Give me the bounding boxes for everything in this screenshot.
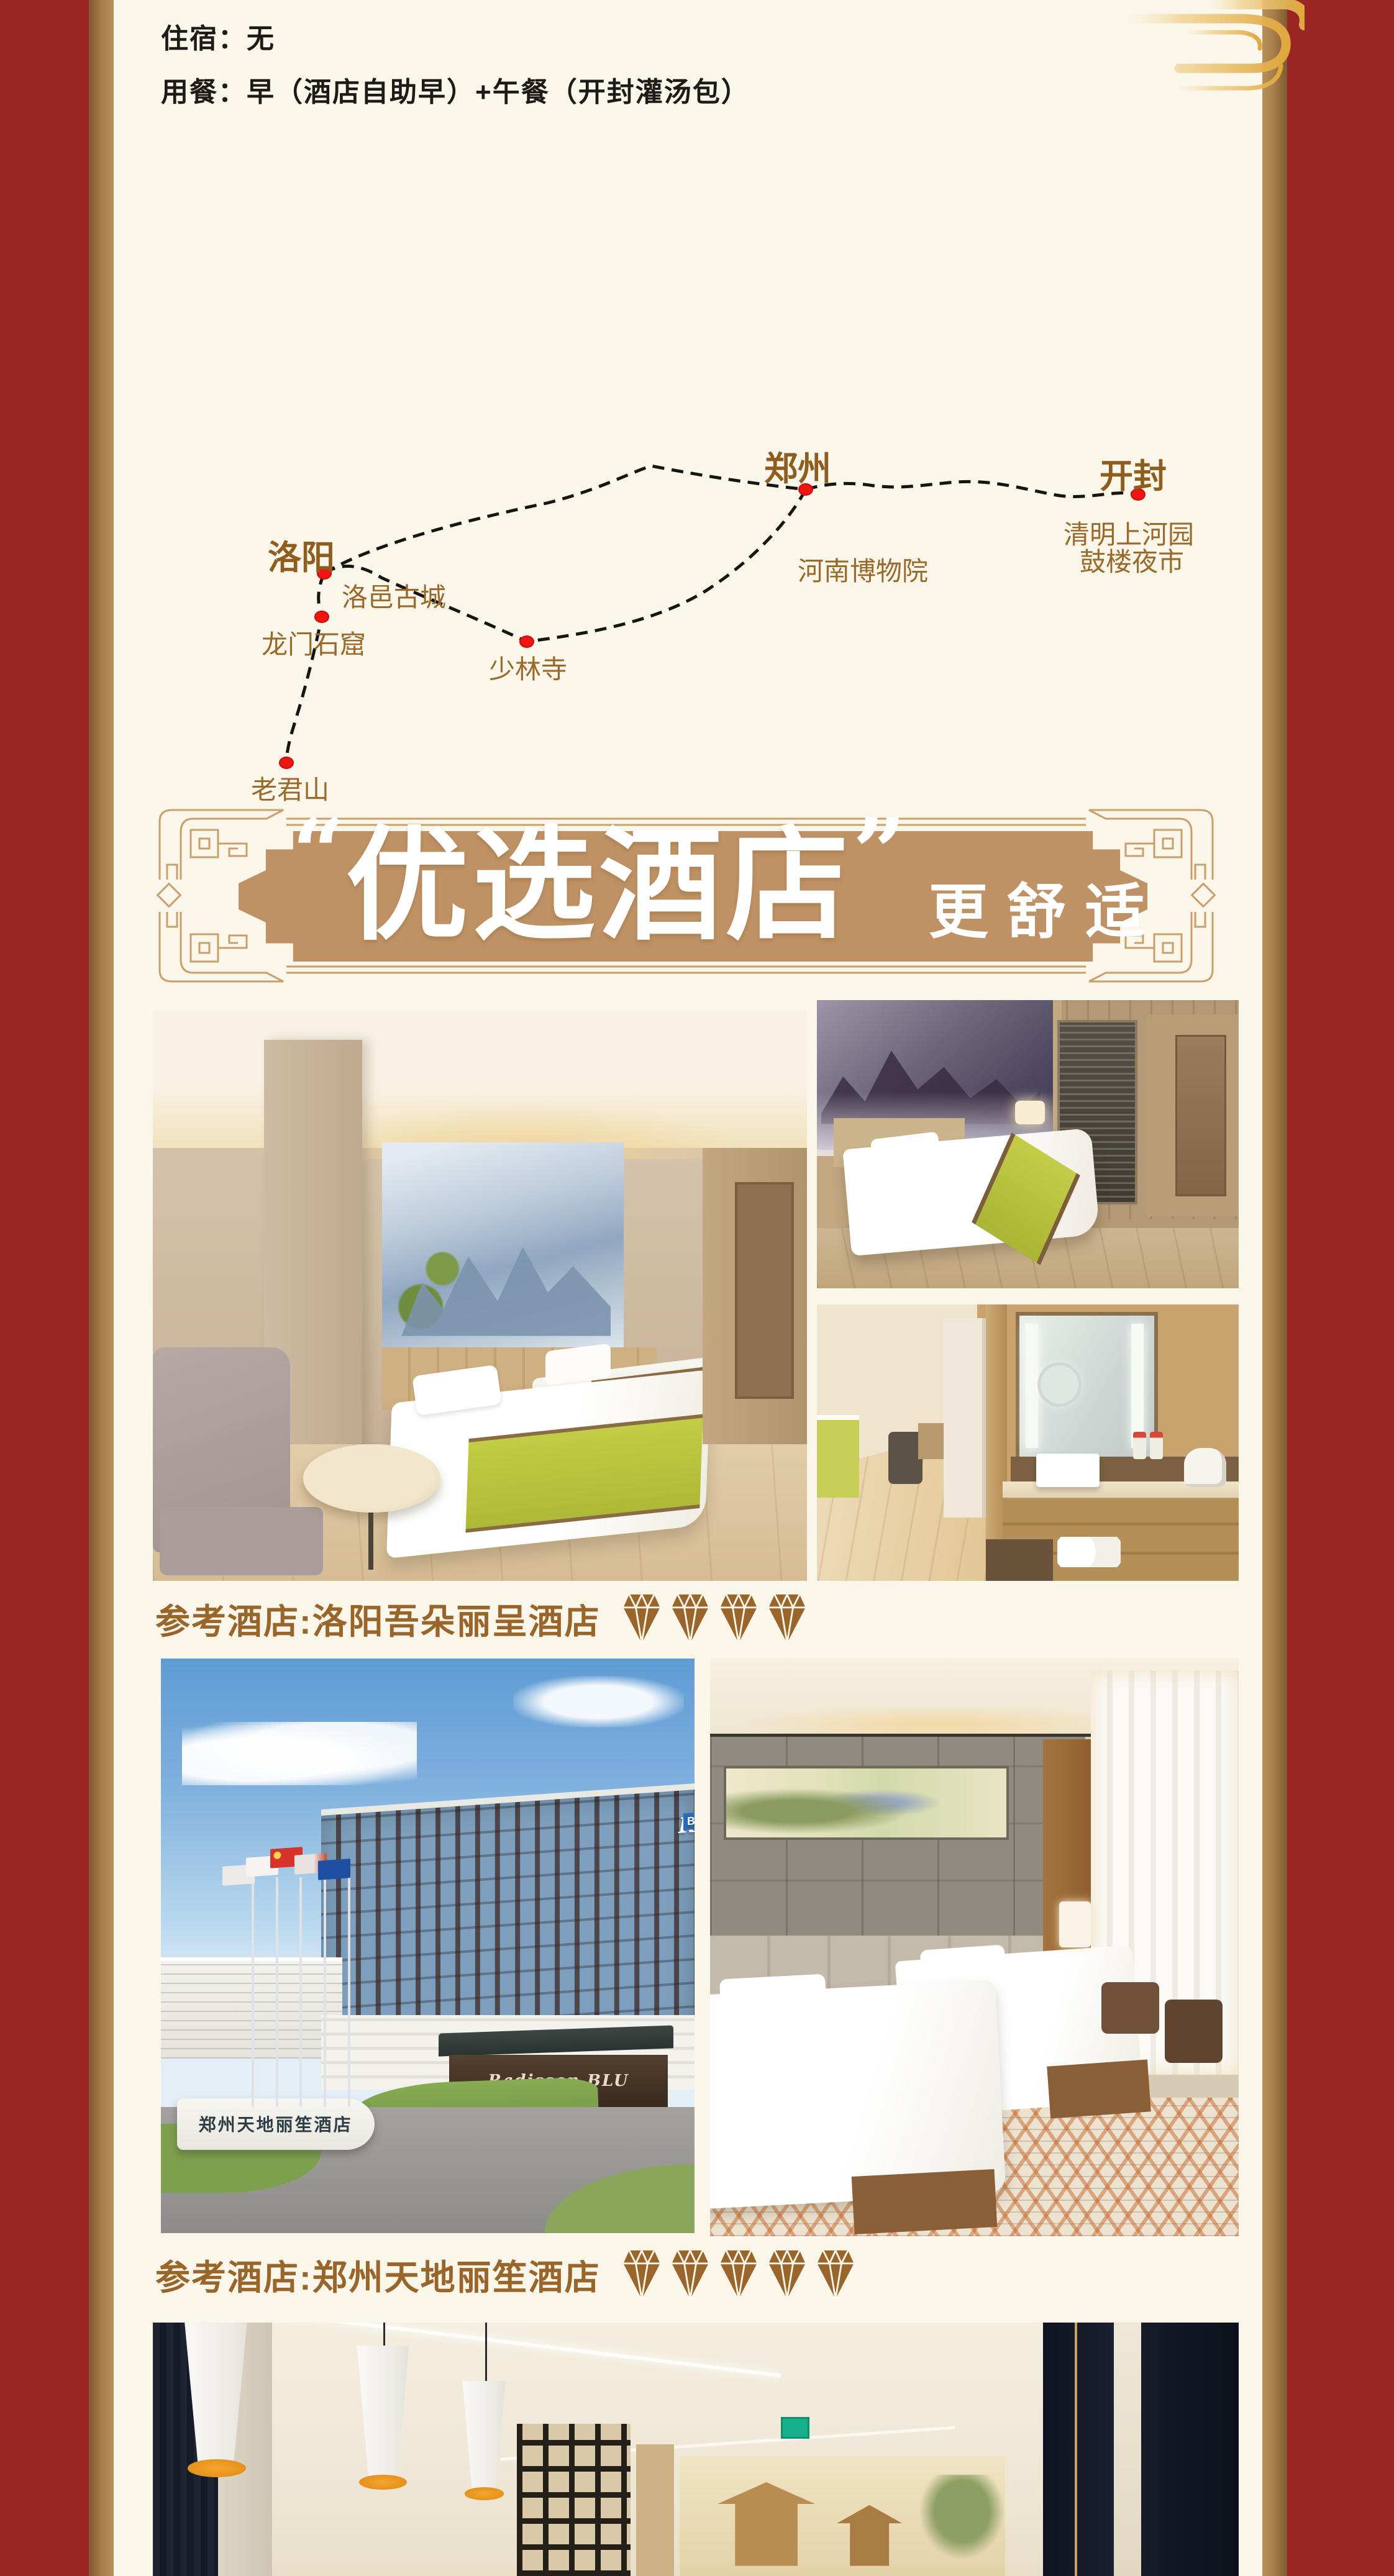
hotel1-caption: 参考酒店:洛阳吾朵丽呈酒店 [155, 1594, 601, 1644]
front-pillow [719, 1973, 827, 2031]
kettle [1184, 1448, 1226, 1486]
map-label-zhengzhou: 郑州 [764, 441, 831, 490]
rolled-towels [1057, 1537, 1121, 1567]
table-leg [368, 1507, 373, 1570]
hotel1-diamond-rating [622, 1593, 816, 1645]
map-label-luoyang: 洛阳 [268, 530, 335, 579]
left-gold-edge [89, 0, 114, 2576]
section-title: 优选酒店 [345, 824, 852, 947]
left-diamond-ornament [158, 884, 181, 907]
map-label-luoyi-ancient-city: 洛邑古城 [342, 576, 446, 614]
flag-blue [318, 1859, 350, 1880]
cloud [513, 1676, 684, 1727]
map-label-kaifeng: 开封 [1100, 448, 1167, 498]
corner-motif-bottom-left [160, 912, 283, 981]
flag-pole [299, 1877, 302, 2107]
diamond-icon [622, 2249, 662, 2301]
flag-pole [276, 1877, 278, 2107]
section-title-banner: “ 优选酒店 ” 更舒适 [292, 808, 1174, 963]
route-luoyang-laojunshan [286, 573, 324, 763]
lamp-wire [485, 2323, 487, 2388]
mural-foliage [913, 2475, 1011, 2566]
close-quote: ” [852, 806, 906, 899]
cloud [182, 1722, 417, 1785]
sofa-seat [160, 1507, 323, 1575]
diamond-icon [719, 1593, 758, 1645]
hotel2-photo-exterior: RadissonBLU Radisson BLU 郑州天地丽笙酒店 [161, 1659, 695, 2233]
gold-slit-light [1075, 2323, 1077, 2576]
mirror-light-strip [1026, 1324, 1038, 1448]
hotel1-photo-bathroom [817, 1304, 1239, 1581]
dark-column [1141, 2323, 1239, 2576]
display-shelf [517, 2424, 631, 2576]
wash-basin [1036, 1454, 1100, 1486]
right-gold-edge [1262, 0, 1287, 2576]
diamond-icon [767, 2249, 807, 2301]
lamp-orange-rim [188, 2459, 246, 2477]
desk-chair [888, 1432, 922, 1485]
hotel3-photo-restaurant [153, 2323, 1239, 2576]
route-map-graphic [0, 404, 1394, 814]
mirror-light-strip [1131, 1324, 1144, 1448]
amenity-bottle [1133, 1432, 1146, 1460]
flag-pole [252, 1877, 254, 2107]
dot-shaolin [520, 636, 534, 647]
round-table [303, 1444, 440, 1513]
section-subtitle: 更舒适 [929, 863, 1164, 950]
map-label-henan-museum: 河南博物院 [798, 550, 928, 588]
lodging-line: 住宿：无 [161, 16, 275, 56]
map-label-longmen-grottoes: 龙门石窟 [262, 624, 366, 662]
flag-pole [348, 1877, 350, 2107]
room-door [735, 1182, 794, 1398]
entry-door [1175, 1035, 1226, 1196]
wall-lamp [1015, 1101, 1045, 1124]
travel-poster-page: 住宿：无 用餐：早（酒店自助早）+午餐（开封灌汤包） 洛阳 郑州 开封 洛邑古城… [0, 0, 1394, 2576]
hotel2-diamond-rating [622, 2249, 864, 2301]
route-luoyang-zhengzhou [324, 466, 806, 573]
front-bed-skirt [851, 2169, 996, 2234]
diamond-icon [767, 1593, 807, 1645]
meals-line: 用餐：早（酒店自助早）+午餐（开封灌汤包） [161, 70, 750, 109]
dot-longmen [315, 611, 329, 622]
diamond-icon [670, 2249, 710, 2301]
monument-sign-text: 郑州天地丽笙酒店 [199, 2111, 353, 2136]
lamp-orange-rim [359, 2475, 407, 2490]
flag-pole [324, 1877, 326, 2107]
diamond-icon [622, 1593, 662, 1645]
diamond-icon [719, 2249, 758, 2301]
armchair [1165, 2000, 1223, 2063]
amenity-bottle [1150, 1432, 1162, 1460]
hotel1-caption-row: 参考酒店:洛阳吾朵丽呈酒店 [155, 1588, 816, 1650]
gold-cloud-ornament [969, 0, 1305, 93]
armchair [1101, 1982, 1160, 2034]
corner-motif-top-left [160, 810, 283, 880]
hotel1-photo-king-room [817, 1000, 1239, 1288]
roof-sign-blu: BLU [683, 1811, 695, 1830]
bed-corner [817, 1415, 859, 1498]
lamp-orange-rim [465, 2487, 504, 2500]
map-label-gulou-night-market: 鼓楼夜市 [1080, 541, 1184, 579]
open-quote: “ [292, 806, 345, 899]
hotel2-caption: 参考酒店:郑州天地丽笙酒店 [155, 2250, 601, 2300]
route-zhengzhou-kaifeng [806, 481, 1138, 496]
landscape-painting [726, 1768, 1006, 1838]
wall-sliver [1114, 2323, 1141, 2576]
padded-wall [710, 1737, 1085, 1939]
magnifying-mirror [1041, 1365, 1078, 1404]
dark-tile-floor [986, 1539, 1054, 1581]
dark-column [1043, 2323, 1114, 2576]
wood-panel [636, 2444, 674, 2576]
map-label-shaolin-temple: 少林寺 [489, 649, 567, 686]
wardrobe [944, 1318, 986, 1517]
route-zhengzhou-shaolin [527, 489, 806, 642]
hotel2-photo-twin-room [710, 1659, 1239, 2236]
right-diamond-ornament [1192, 884, 1215, 907]
diamond-icon [670, 1593, 710, 1645]
floor-lamp [1059, 1901, 1091, 1947]
rear-bed-skirt [1047, 2059, 1150, 2118]
diamond-icon [816, 2249, 855, 2301]
hotel1-photo-twin-room [153, 1011, 807, 1581]
exit-sign [783, 2419, 808, 2437]
hotel2-caption-row: 参考酒店:郑州天地丽笙酒店 [155, 2244, 864, 2306]
dot-laojunshan [280, 757, 293, 768]
